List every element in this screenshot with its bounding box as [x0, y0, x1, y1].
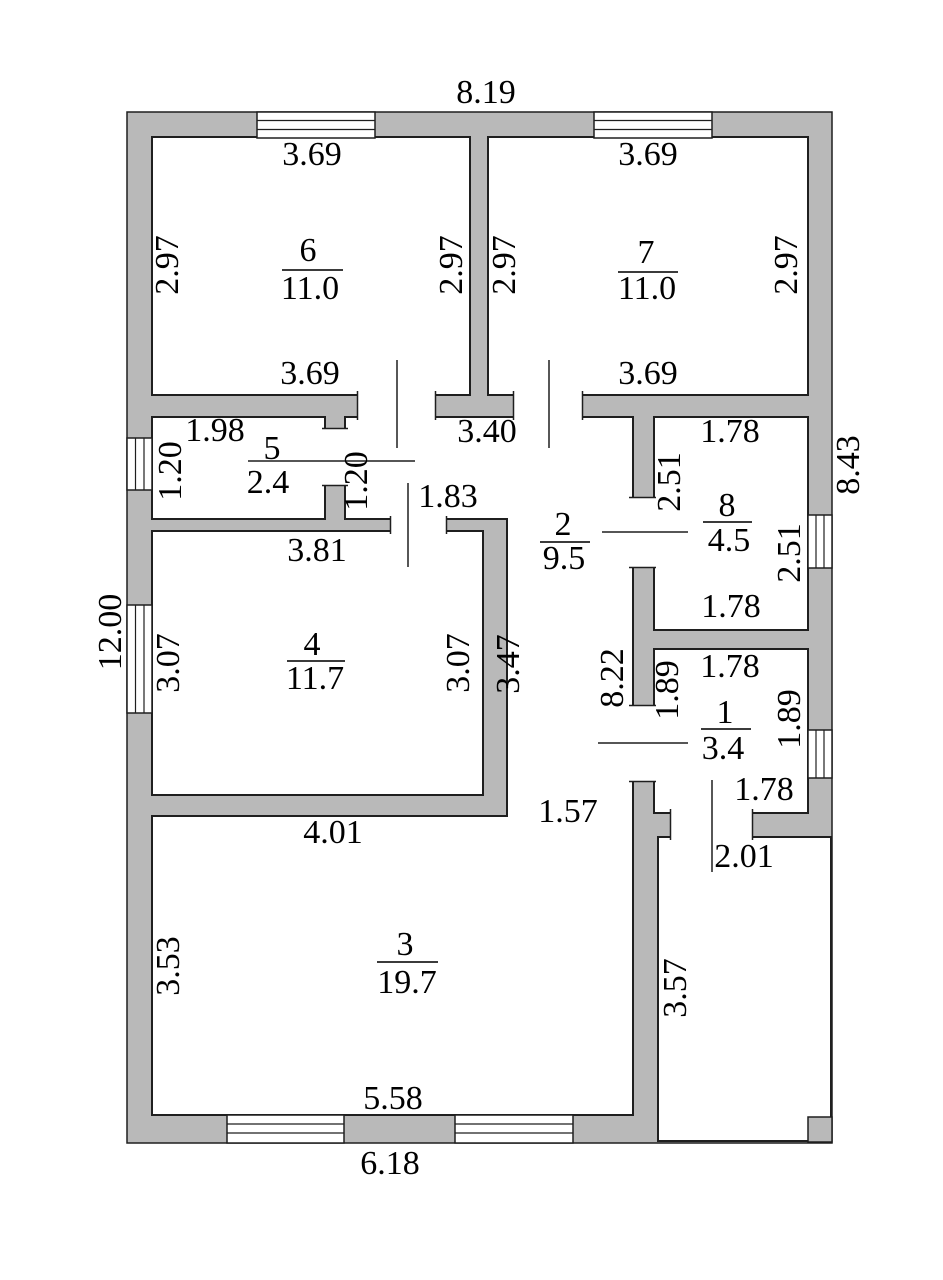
room-area-label: 11.0 — [618, 272, 676, 306]
dimension-label: 3.07 — [442, 633, 476, 693]
dimension-label: 4.01 — [303, 816, 363, 850]
labels-layer: 8.193.693.692.972.972.972.97611.0711.03.… — [0, 0, 943, 1280]
dimension-label: 2.97 — [770, 235, 804, 295]
dimension-label: 2.01 — [714, 840, 774, 874]
dimension-label: 2.97 — [488, 235, 522, 295]
dimension-label: 1.83 — [418, 480, 478, 514]
room-number-label: 8 — [719, 489, 736, 523]
dimension-label: 3.69 — [280, 357, 340, 391]
dimension-label: 3.07 — [152, 633, 186, 693]
dimension-label: 3.69 — [282, 138, 342, 172]
dimension-label: 8.19 — [456, 76, 516, 110]
room-area-label: 11.7 — [286, 662, 344, 696]
dimension-label: 1.78 — [700, 650, 760, 684]
room-number-label: 2 — [555, 508, 572, 542]
dimension-label: 1.89 — [651, 660, 685, 720]
dimension-label: 3.69 — [618, 138, 678, 172]
dimension-label: 3.69 — [618, 357, 678, 391]
dimension-label: 12.00 — [94, 594, 128, 671]
dimension-label: 3.53 — [152, 936, 186, 996]
dimension-label: 3.57 — [659, 958, 693, 1018]
dimension-label: 8.43 — [832, 435, 866, 495]
room-area-label: 11.0 — [281, 272, 339, 306]
room-number-label: 1 — [717, 696, 734, 730]
dimension-label: 1.89 — [773, 689, 807, 749]
dimension-label: 8.22 — [596, 648, 630, 708]
room-number-label: 3 — [397, 928, 414, 962]
dimension-label: 2.97 — [151, 235, 185, 295]
room-number-label: 4 — [304, 628, 321, 662]
dimension-label: 2.51 — [773, 523, 807, 583]
dimension-label: 1.20 — [340, 451, 374, 511]
dimension-label: 3.81 — [287, 534, 347, 568]
dimension-label: 5.58 — [363, 1082, 423, 1116]
dimension-label: 2.97 — [435, 235, 469, 295]
room-area-label: 2.4 — [247, 466, 290, 500]
dimension-label: 1.98 — [185, 414, 245, 448]
dimension-label: 1.78 — [700, 415, 760, 449]
dimension-label: 3.47 — [492, 634, 526, 694]
room-area-label: 4.5 — [708, 524, 751, 558]
floor-plan-page: 8.193.693.692.972.972.972.97611.0711.03.… — [0, 0, 943, 1280]
dimension-label: 1.20 — [154, 441, 188, 501]
room-number-label: 5 — [264, 432, 281, 466]
dimension-label: 1.57 — [538, 795, 598, 829]
dimension-label: 3.40 — [457, 415, 517, 449]
room-area-label: 19.7 — [377, 966, 437, 1000]
dimension-label: 2.51 — [653, 452, 687, 512]
dimension-label: 1.78 — [734, 773, 794, 807]
dimension-label: 6.18 — [360, 1147, 420, 1181]
room-area-label: 9.5 — [543, 542, 586, 576]
dimension-label: 1.78 — [701, 590, 761, 624]
room-area-label: 3.4 — [702, 732, 745, 766]
room-number-label: 6 — [300, 234, 317, 268]
room-number-label: 7 — [638, 236, 655, 270]
